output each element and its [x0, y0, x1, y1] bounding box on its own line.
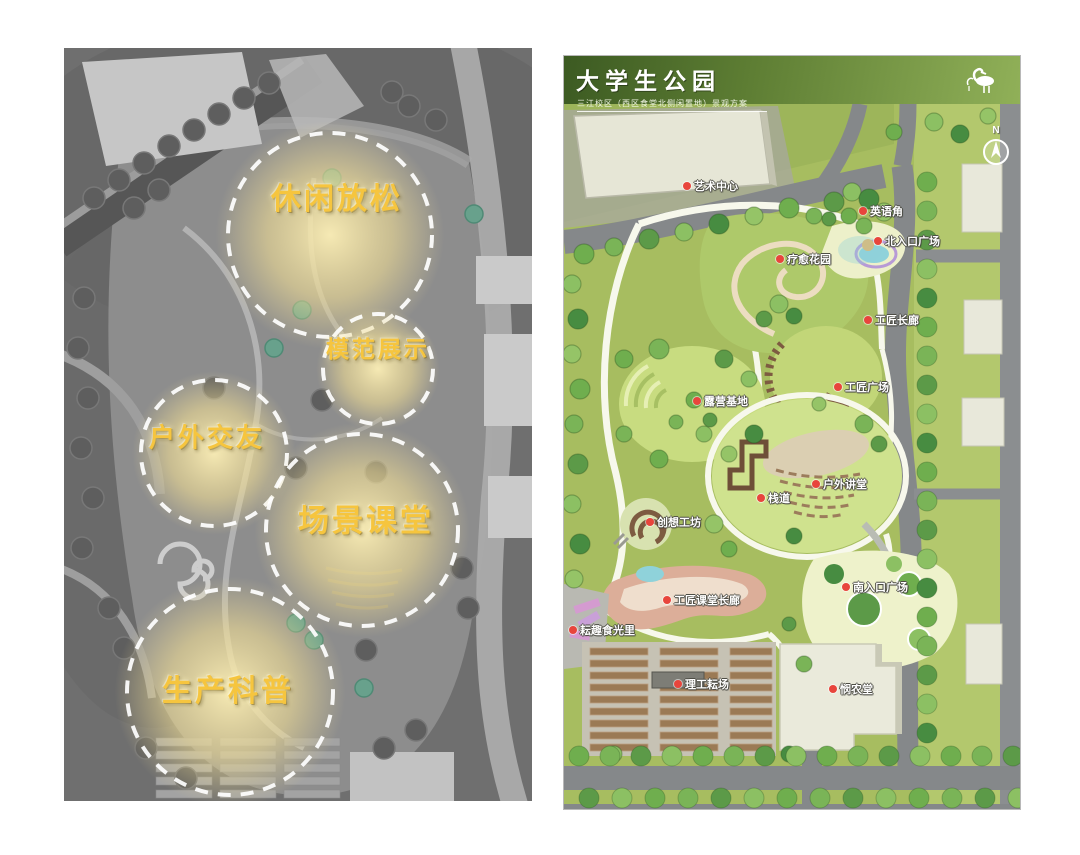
plan-subtitle: 三江校区（西区食堂北侧闲置地）景观方案 — [564, 96, 1020, 109]
farm-plots — [590, 648, 772, 751]
road — [902, 104, 908, 166]
color-plan-art — [564, 104, 1021, 810]
road — [1000, 104, 1021, 810]
building — [962, 164, 1002, 232]
building — [488, 476, 532, 538]
gray-plan-art — [64, 48, 532, 801]
subtitle-underline — [577, 111, 767, 112]
road — [564, 766, 1021, 790]
building — [964, 300, 1002, 354]
plan-title: 大学生公园 — [564, 56, 1020, 96]
building — [966, 624, 1002, 684]
north-compass-icon: N — [978, 122, 1014, 172]
building — [476, 256, 532, 304]
plan-header: 大学生公园 三江校区（西区食堂北侧闲置地）景观方案 — [564, 56, 1020, 104]
zoning-plan-board: 休闲放松模范展示户外交友场景课堂生产科普 — [64, 48, 532, 801]
building — [350, 752, 454, 801]
art-center-building — [574, 110, 770, 198]
collage-canvas: 休闲放松模范展示户外交友场景课堂生产科普 大学生公园 三江校区（西区食堂北侧闲置… — [0, 0, 1080, 855]
compass-north-label: N — [992, 125, 999, 136]
building — [484, 334, 532, 426]
masterplan-board: 大学生公园 三江校区（西区食堂北侧闲置地）景观方案 — [563, 55, 1021, 810]
building — [962, 398, 1004, 446]
masterplan-map: N 艺术中心英语角北入口广场疗愈花园工匠长廊工匠广场露营基地户外讲堂栈道创想工坊… — [564, 104, 1021, 810]
flamingo-icon — [958, 64, 1004, 96]
